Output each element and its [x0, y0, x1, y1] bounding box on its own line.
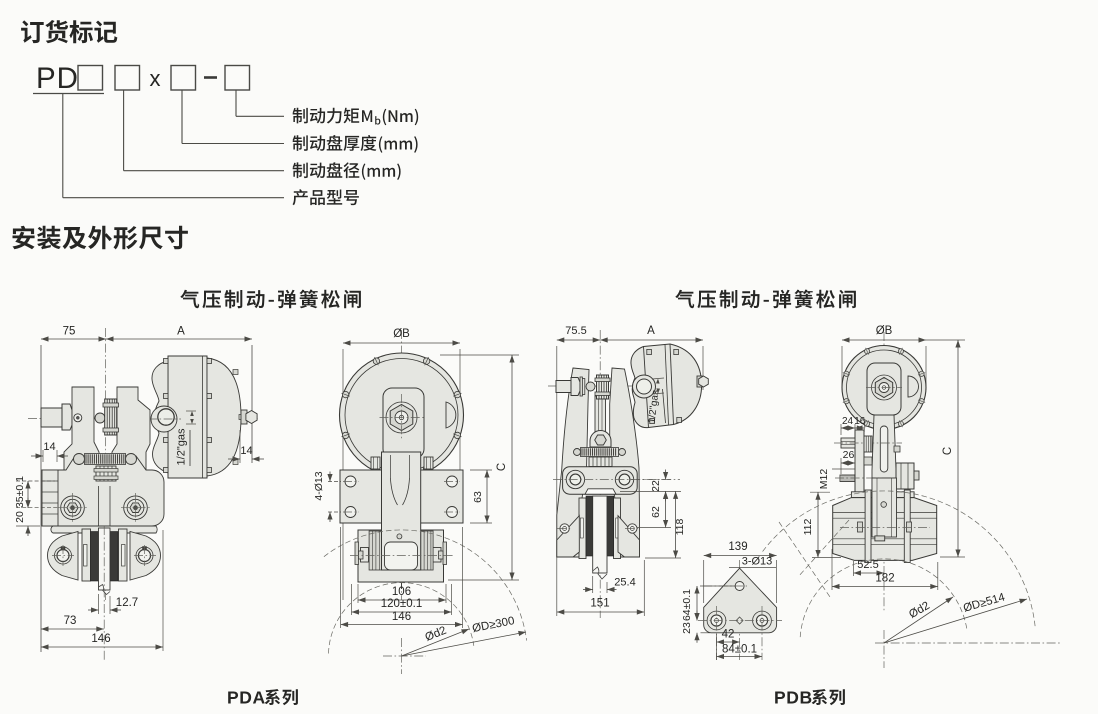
svg-text:PDA: PDA — [227, 688, 266, 708]
svg-text:PD: PD — [36, 62, 79, 95]
svg-text:A: A — [177, 326, 185, 338]
svg-text:139: 139 — [728, 541, 747, 553]
svg-text:M12: M12 — [818, 469, 830, 490]
svg-text:C: C — [496, 463, 508, 471]
svg-text:63: 63 — [472, 491, 484, 503]
svg-text:22: 22 — [650, 480, 662, 492]
svg-text:42: 42 — [722, 629, 735, 641]
svg-text:24: 24 — [842, 416, 854, 427]
svg-text:ØB: ØB — [876, 325, 893, 337]
svg-text:146: 146 — [91, 633, 110, 645]
svg-text:14: 14 — [43, 441, 55, 453]
svg-text:106: 106 — [392, 586, 411, 598]
svg-text:26: 26 — [843, 449, 855, 461]
svg-text:112: 112 — [802, 518, 814, 535]
svg-text:73: 73 — [64, 615, 77, 627]
svg-text:146: 146 — [392, 611, 411, 623]
svg-text:64±0.1: 64±0.1 — [681, 589, 693, 621]
svg-text:75: 75 — [63, 326, 76, 338]
svg-text:ØB: ØB — [393, 328, 410, 340]
svg-text:75.5: 75.5 — [565, 325, 586, 337]
svg-text:20: 20 — [14, 511, 26, 523]
svg-text:84±0.1: 84±0.1 — [722, 644, 757, 656]
svg-text:x: x — [150, 66, 161, 91]
svg-text:1/2"gas: 1/2"gas — [176, 428, 188, 465]
svg-text:62: 62 — [650, 506, 662, 518]
svg-text:23: 23 — [681, 622, 693, 634]
svg-text:182: 182 — [875, 573, 894, 585]
svg-text:35±0.1: 35±0.1 — [14, 476, 26, 508]
svg-text:A: A — [647, 325, 655, 337]
svg-text:118: 118 — [674, 518, 686, 535]
svg-text:120±0.1: 120±0.1 — [381, 598, 423, 610]
svg-text:C: C — [942, 447, 954, 455]
svg-text:151: 151 — [590, 598, 609, 610]
svg-text:12.7: 12.7 — [116, 597, 138, 609]
svg-text:14: 14 — [240, 445, 252, 457]
svg-text:25.4: 25.4 — [614, 577, 635, 589]
svg-text:16: 16 — [854, 416, 866, 427]
svg-text:4-Ø13: 4-Ø13 — [313, 471, 325, 500]
svg-text:PDB: PDB — [774, 688, 813, 708]
svg-text:52.5: 52.5 — [857, 559, 878, 571]
svg-text:3-Ø13: 3-Ø13 — [742, 556, 773, 568]
